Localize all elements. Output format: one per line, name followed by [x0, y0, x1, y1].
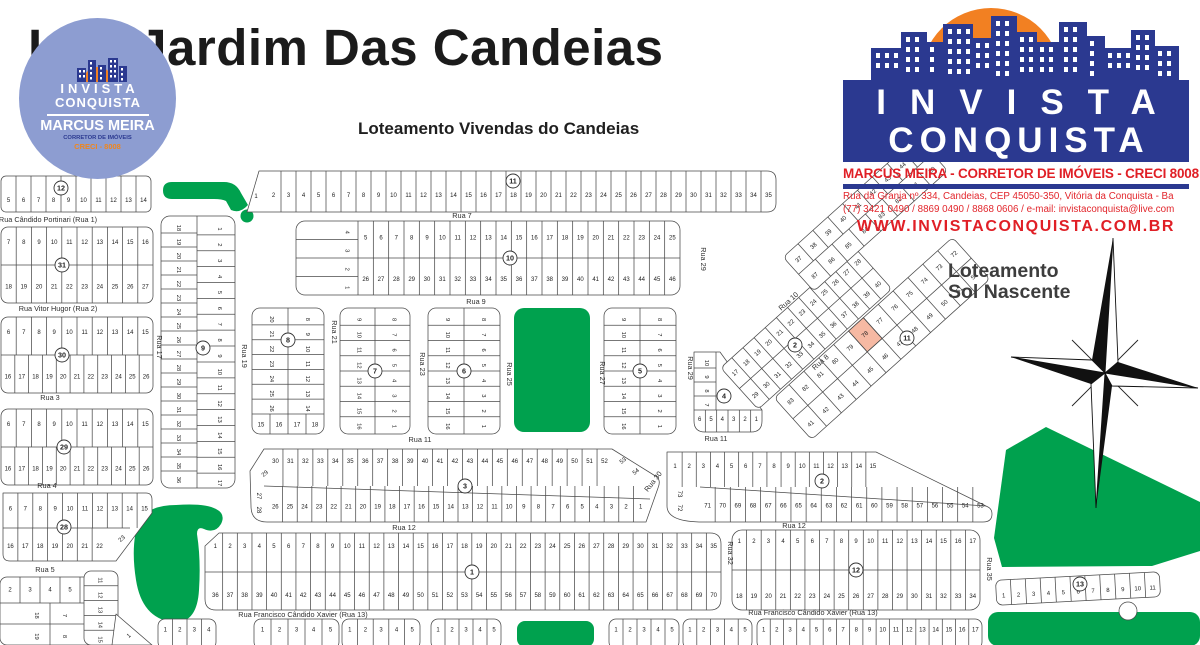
quadra-29: 67891011121314151617181920212223242526 [1, 409, 153, 485]
svg-text:73: 73 [676, 491, 682, 498]
svg-text:36: 36 [175, 477, 181, 483]
svg-text:11: 11 [893, 628, 900, 634]
svg-text:32: 32 [302, 459, 309, 465]
svg-text:15: 15 [465, 193, 472, 199]
svg-text:6: 6 [391, 349, 397, 352]
svg-text:1: 1 [391, 425, 397, 428]
svg-text:43: 43 [467, 459, 474, 465]
svg-text:23: 23 [534, 544, 541, 550]
svg-text:32: 32 [666, 544, 673, 550]
svg-text:40: 40 [422, 459, 429, 465]
svg-text:30: 30 [637, 544, 644, 550]
svg-text:33: 33 [735, 193, 742, 199]
svg-text:62: 62 [841, 503, 848, 509]
svg-text:13: 13 [96, 240, 103, 246]
svg-text:18: 18 [33, 612, 39, 618]
svg-text:10: 10 [66, 330, 73, 336]
svg-text:11: 11 [81, 330, 88, 336]
svg-text:27: 27 [175, 351, 181, 357]
svg-text:18: 18 [562, 236, 569, 242]
svg-text:12: 12 [216, 400, 222, 406]
svg-text:3: 3 [344, 249, 350, 252]
svg-text:19: 19 [577, 236, 584, 242]
svg-text:21: 21 [175, 267, 181, 273]
svg-text:36: 36 [516, 277, 523, 283]
street-label: Rua 21 [330, 320, 339, 344]
svg-text:10: 10 [506, 254, 514, 263]
svg-text:19: 19 [525, 193, 532, 199]
svg-text:49: 49 [556, 459, 563, 465]
block-number-badge: 3 [458, 479, 472, 493]
street-label: Rua Francisco Cândido Xavier (Rua 13) [238, 610, 367, 619]
block-number-badge: 2 [815, 474, 829, 488]
svg-text:63: 63 [825, 503, 832, 509]
svg-text:17: 17 [495, 193, 502, 199]
svg-text:12: 12 [420, 193, 427, 199]
svg-text:14: 14 [620, 393, 626, 400]
svg-text:15: 15 [96, 636, 102, 642]
svg-text:43: 43 [315, 593, 322, 599]
svg-text:24: 24 [600, 193, 607, 199]
block-number-badge: 31 [55, 258, 69, 272]
svg-text:30: 30 [58, 351, 66, 360]
svg-text:13: 13 [435, 193, 442, 199]
svg-text:24: 24 [115, 375, 122, 381]
svg-text:18: 18 [32, 375, 39, 381]
svg-text:23: 23 [585, 193, 592, 199]
svg-text:33: 33 [175, 435, 181, 441]
svg-text:70: 70 [710, 593, 717, 599]
quadra-28: 67891011121314151617181920212223 [3, 493, 152, 561]
svg-text:51: 51 [586, 459, 593, 465]
svg-text:25: 25 [112, 285, 119, 291]
svg-text:40: 40 [577, 277, 584, 283]
svg-text:43: 43 [623, 277, 630, 283]
svg-text:32: 32 [454, 277, 461, 283]
svg-text:11: 11 [882, 539, 889, 545]
svg-text:61: 61 [578, 593, 585, 599]
svg-text:9: 9 [216, 354, 222, 357]
svg-text:19: 19 [20, 285, 27, 291]
svg-text:13: 13 [462, 504, 469, 510]
svg-text:35: 35 [710, 544, 717, 550]
svg-text:13: 13 [111, 507, 118, 513]
svg-text:26: 26 [175, 337, 181, 343]
svg-text:24: 24 [654, 236, 661, 242]
svg-text:58: 58 [901, 503, 908, 509]
logo-bar [843, 184, 1189, 189]
svg-text:14: 14 [356, 393, 362, 400]
sol-nascente-label: Loteamento Sol Nascente [948, 261, 1070, 303]
svg-text:20: 20 [175, 253, 181, 259]
svg-text:3: 3 [656, 394, 662, 397]
svg-text:19: 19 [46, 375, 53, 381]
svg-text:23: 23 [268, 361, 274, 367]
svg-text:12: 12 [470, 236, 477, 242]
street-label: Rua 17 [155, 335, 164, 359]
svg-text:17: 17 [18, 375, 25, 381]
street-label: Rua 23 [418, 352, 427, 376]
svg-text:22: 22 [66, 285, 73, 291]
svg-text:57: 57 [916, 503, 923, 509]
svg-text:21: 21 [74, 467, 81, 473]
svg-text:31: 31 [652, 544, 659, 550]
svg-text:41: 41 [285, 593, 292, 599]
svg-text:17: 17 [22, 544, 29, 550]
street-label: Rua 11 [705, 434, 728, 443]
svg-text:29: 29 [408, 277, 415, 283]
svg-text:10: 10 [51, 240, 58, 246]
badge-brand-line1: INVISTA [19, 82, 176, 96]
svg-text:37: 37 [377, 459, 384, 465]
svg-text:3: 3 [391, 394, 397, 397]
svg-text:44: 44 [638, 277, 645, 283]
svg-text:14: 14 [96, 622, 102, 629]
svg-text:15: 15 [516, 236, 523, 242]
svg-text:15: 15 [940, 539, 947, 545]
svg-text:46: 46 [511, 459, 518, 465]
svg-text:32: 32 [720, 193, 727, 199]
svg-text:21: 21 [345, 504, 352, 510]
svg-text:16: 16 [620, 423, 626, 429]
svg-text:31: 31 [439, 277, 446, 283]
svg-text:13: 13 [388, 544, 395, 550]
svg-text:12: 12 [110, 198, 117, 204]
svg-text:5: 5 [480, 364, 486, 367]
svg-text:1: 1 [656, 425, 662, 428]
badge-brand-line2: CONQUISTA [19, 96, 176, 110]
svg-text:8: 8 [391, 318, 397, 321]
svg-text:11: 11 [96, 577, 102, 583]
svg-text:71: 71 [704, 503, 711, 509]
svg-text:14: 14 [926, 539, 933, 545]
svg-text:26: 26 [268, 405, 274, 411]
svg-text:20: 20 [67, 544, 74, 550]
block-number-badge: 6 [457, 364, 471, 378]
svg-text:33: 33 [317, 459, 324, 465]
svg-text:12: 12 [373, 544, 380, 550]
svg-text:34: 34 [750, 193, 757, 199]
svg-text:13: 13 [911, 539, 918, 545]
svg-text:55: 55 [947, 503, 954, 509]
svg-text:13: 13 [304, 390, 310, 396]
svg-text:27: 27 [593, 544, 600, 550]
svg-text:16: 16 [531, 236, 538, 242]
svg-text:44: 44 [329, 593, 336, 599]
svg-text:52: 52 [601, 459, 608, 465]
svg-text:13: 13 [444, 377, 450, 383]
svg-text:66: 66 [780, 503, 787, 509]
logo-website: WWW.INVISTACONQUISTA.COM.BR [843, 218, 1189, 236]
svg-text:14: 14 [127, 422, 134, 428]
block-number-badge: 1 [465, 565, 479, 579]
svg-text:15: 15 [946, 628, 953, 634]
svg-text:24: 24 [175, 309, 181, 316]
badge-creci: CRECI - 8008 [19, 142, 176, 151]
svg-text:14: 14 [447, 504, 454, 510]
svg-text:54: 54 [476, 593, 483, 599]
svg-text:10: 10 [390, 193, 397, 199]
green-area [988, 612, 1200, 645]
street-label: Rua 12 [782, 521, 806, 530]
svg-text:18: 18 [175, 225, 181, 231]
svg-text:14: 14 [444, 393, 450, 400]
svg-text:20: 20 [60, 375, 67, 381]
svg-text:53: 53 [461, 593, 468, 599]
street-label: Rua 29 [686, 356, 695, 380]
svg-text:39: 39 [562, 277, 569, 283]
svg-text:11: 11 [216, 385, 222, 391]
svg-text:25: 25 [129, 467, 136, 473]
svg-text:13: 13 [620, 377, 626, 383]
svg-text:40: 40 [271, 593, 278, 599]
svg-text:30: 30 [272, 459, 279, 465]
svg-text:11: 11 [903, 334, 911, 343]
svg-text:27: 27 [645, 193, 652, 199]
street-label: Rua 35 [985, 557, 994, 581]
svg-text:72: 72 [676, 505, 682, 512]
svg-text:17: 17 [972, 628, 979, 634]
svg-text:65: 65 [795, 503, 802, 509]
svg-text:48: 48 [388, 593, 395, 599]
svg-text:2: 2 [391, 410, 397, 413]
svg-text:12: 12 [477, 504, 484, 510]
svg-text:68: 68 [681, 593, 688, 599]
svg-text:61: 61 [856, 503, 863, 509]
svg-text:10: 10 [80, 198, 87, 204]
svg-text:15: 15 [142, 422, 149, 428]
svg-text:59: 59 [549, 593, 556, 599]
logo-address-line1: Rua da Granja nº 334, Candeias, CEP 4505… [843, 192, 1189, 202]
svg-text:22: 22 [175, 281, 181, 287]
svg-text:35: 35 [500, 277, 507, 283]
svg-text:34: 34 [332, 459, 339, 465]
quadra-31: 7891011121314151618192021222324252627 [1, 227, 153, 303]
block-number-badge: 11 [506, 174, 520, 188]
svg-text:13: 13 [125, 198, 132, 204]
svg-text:14: 14 [126, 507, 133, 513]
svg-text:66: 66 [652, 593, 659, 599]
corner-lot: 1 [112, 614, 152, 645]
svg-text:6: 6 [216, 307, 222, 310]
svg-text:28: 28 [608, 544, 615, 550]
quadra-3: 3031323334353637383940414243444546474849… [250, 449, 659, 522]
svg-text:32: 32 [940, 594, 947, 600]
svg-text:10: 10 [356, 332, 362, 338]
svg-text:23: 23 [809, 594, 816, 600]
svg-text:20: 20 [765, 594, 772, 600]
svg-text:20: 20 [60, 467, 67, 473]
svg-text:6: 6 [462, 367, 466, 376]
svg-text:31: 31 [175, 407, 181, 413]
svg-text:25: 25 [287, 504, 294, 510]
svg-text:35: 35 [175, 463, 181, 469]
svg-text:14: 14 [855, 464, 862, 470]
svg-text:13: 13 [112, 330, 119, 336]
svg-text:44: 44 [482, 459, 489, 465]
svg-text:16: 16 [955, 539, 962, 545]
quadra-1: 1234567891011121314151617181920212223242… [205, 533, 721, 610]
svg-text:25: 25 [175, 323, 181, 329]
svg-text:37: 37 [531, 277, 538, 283]
svg-text:18: 18 [312, 422, 319, 428]
small-block-3: 12345 [342, 619, 420, 645]
svg-text:33: 33 [470, 277, 477, 283]
svg-text:13: 13 [96, 607, 102, 613]
svg-text:34: 34 [696, 544, 703, 550]
svg-text:9: 9 [356, 318, 362, 321]
svg-text:16: 16 [5, 467, 12, 473]
street-label: Rua Cândido Portinari (Rua 1) [0, 215, 97, 224]
svg-text:39: 39 [407, 459, 414, 465]
svg-text:23: 23 [316, 504, 323, 510]
block-number-badge: 7 [368, 364, 382, 378]
svg-text:21: 21 [51, 285, 58, 291]
svg-text:59: 59 [886, 503, 893, 509]
svg-text:46: 46 [669, 277, 676, 283]
street-label: Rua 11 [409, 435, 432, 444]
svg-text:8: 8 [656, 318, 662, 321]
svg-text:2: 2 [793, 341, 797, 350]
svg-text:63: 63 [608, 593, 615, 599]
svg-text:38: 38 [546, 277, 553, 283]
svg-text:35: 35 [765, 193, 772, 199]
svg-text:16: 16 [356, 423, 362, 429]
svg-text:11: 11 [509, 177, 517, 186]
svg-text:52: 52 [446, 593, 453, 599]
svg-text:13: 13 [1076, 580, 1084, 589]
svg-text:16: 16 [480, 193, 487, 199]
svg-text:30: 30 [175, 393, 181, 399]
svg-text:11: 11 [359, 544, 366, 550]
block-number-badge: 4 [717, 389, 731, 403]
svg-text:31: 31 [287, 459, 294, 465]
svg-text:28: 28 [175, 365, 181, 371]
svg-text:64: 64 [810, 503, 817, 509]
block-number-badge: 29 [57, 440, 71, 454]
svg-text:55: 55 [490, 593, 497, 599]
svg-text:11: 11 [444, 347, 450, 353]
svg-text:1: 1 [470, 568, 474, 577]
svg-text:62: 62 [593, 593, 600, 599]
svg-text:12: 12 [620, 362, 626, 368]
svg-text:23: 23 [175, 295, 181, 301]
svg-text:25: 25 [669, 236, 676, 242]
svg-text:47: 47 [373, 593, 380, 599]
svg-text:45: 45 [344, 593, 351, 599]
svg-text:23: 23 [638, 236, 645, 242]
badge-agent-name: MARCUS MEIRA [19, 119, 176, 134]
svg-text:7: 7 [391, 333, 397, 336]
svg-text:53: 53 [977, 503, 984, 509]
svg-text:24: 24 [268, 376, 274, 383]
svg-text:18: 18 [461, 544, 468, 550]
flyer-page: 5678910111213147891011121314151618192021… [0, 0, 1200, 645]
svg-text:12: 12 [96, 422, 103, 428]
svg-text:12: 12 [827, 464, 834, 470]
svg-text:26: 26 [362, 277, 369, 283]
svg-text:14: 14 [216, 432, 222, 439]
svg-text:57: 57 [520, 593, 527, 599]
svg-text:7: 7 [61, 614, 67, 617]
svg-text:18: 18 [389, 504, 396, 510]
svg-text:10: 10 [67, 507, 74, 513]
svg-text:69: 69 [696, 593, 703, 599]
svg-text:2: 2 [480, 410, 486, 413]
svg-text:16: 16 [418, 504, 425, 510]
svg-text:25: 25 [129, 375, 136, 381]
svg-text:29: 29 [896, 594, 903, 600]
svg-text:27: 27 [378, 277, 385, 283]
svg-text:34: 34 [175, 449, 181, 456]
svg-text:10: 10 [879, 628, 886, 634]
svg-text:15: 15 [356, 408, 362, 414]
svg-text:8: 8 [216, 339, 222, 342]
svg-text:19: 19 [476, 544, 483, 550]
block-number-badge: 2 [788, 338, 802, 352]
svg-text:2: 2 [344, 268, 350, 271]
svg-text:28: 28 [393, 277, 400, 283]
svg-text:18: 18 [736, 594, 743, 600]
svg-text:5: 5 [216, 291, 222, 294]
svg-text:5: 5 [656, 364, 662, 367]
svg-text:26: 26 [127, 285, 134, 291]
svg-text:18: 18 [37, 544, 44, 550]
svg-text:17: 17 [294, 422, 301, 428]
quadra-2: 1234567891011121314157170696867666564636… [667, 452, 992, 522]
small-block-1: 1234 [158, 619, 216, 645]
svg-text:26: 26 [853, 594, 860, 600]
svg-text:6: 6 [656, 349, 662, 352]
svg-text:21: 21 [81, 544, 88, 550]
svg-text:16: 16 [142, 240, 149, 246]
svg-text:10: 10 [867, 539, 874, 545]
street-label: Rua Vitor Hugor (Rua 2) [19, 304, 98, 313]
strip-block-west: 1112131415 [84, 571, 118, 645]
badge-divider [47, 114, 149, 116]
svg-text:26: 26 [143, 375, 150, 381]
street-label: Rua 9 [466, 297, 485, 306]
svg-text:24: 24 [115, 467, 122, 473]
svg-text:11: 11 [491, 504, 498, 510]
svg-text:19: 19 [374, 504, 381, 510]
svg-text:25: 25 [615, 193, 622, 199]
svg-text:31: 31 [58, 261, 66, 270]
svg-text:20: 20 [36, 285, 43, 291]
street-cutout [1119, 602, 1137, 620]
svg-text:58: 58 [534, 593, 541, 599]
svg-text:12: 12 [444, 362, 450, 368]
svg-text:22: 22 [623, 236, 630, 242]
svg-text:39: 39 [256, 593, 263, 599]
svg-text:50: 50 [417, 593, 424, 599]
badge-skyline-icon [63, 52, 133, 82]
svg-text:13: 13 [841, 464, 848, 470]
svg-text:15: 15 [216, 448, 222, 454]
svg-text:29: 29 [60, 443, 68, 452]
svg-text:41: 41 [592, 277, 599, 283]
svg-text:24: 24 [823, 594, 830, 600]
svg-text:10: 10 [444, 332, 450, 338]
svg-text:15: 15 [142, 330, 149, 336]
svg-text:11: 11 [1149, 585, 1156, 591]
svg-text:50: 50 [571, 459, 578, 465]
svg-text:34: 34 [485, 277, 492, 283]
svg-text:11: 11 [356, 347, 362, 353]
svg-text:28: 28 [60, 523, 68, 532]
small-block-6: 12345 [683, 619, 752, 645]
logo-brand-line2: CONQUISTA [843, 122, 1189, 160]
